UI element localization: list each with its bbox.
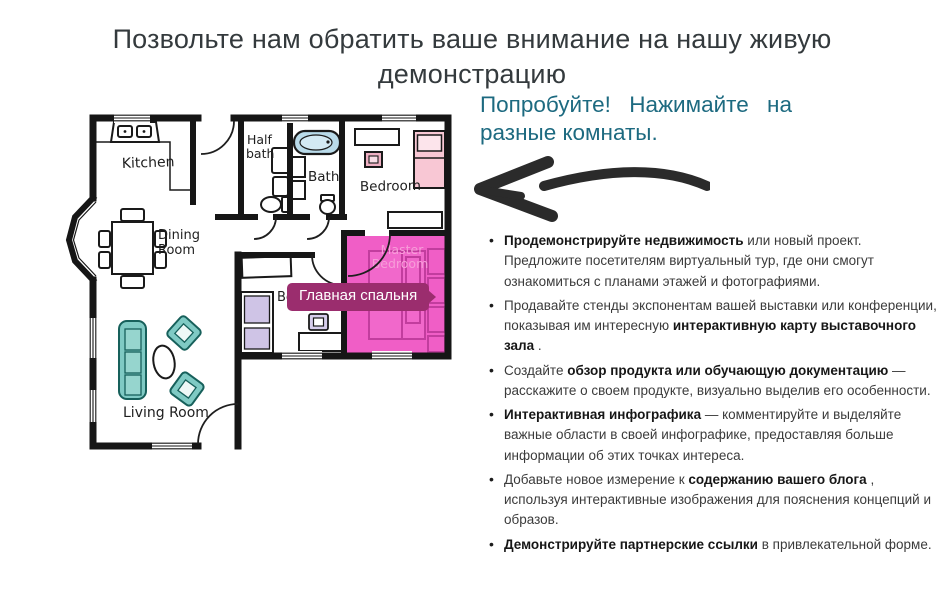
- feature-bullet: Создайте обзор продукта или обучающую до…: [487, 361, 940, 402]
- room-label-bedroom[interactable]: Bedroom: [360, 178, 421, 195]
- coffee-table: [151, 344, 177, 380]
- room-tooltip: Главная спальня: [287, 283, 429, 311]
- room-label-dining-2[interactable]: Room: [158, 243, 195, 258]
- bathtub: [294, 131, 340, 154]
- bath-shelf: [292, 157, 305, 177]
- dresser: [242, 256, 292, 278]
- feature-bullet: Интерактивная инфографика — комментируйт…: [487, 405, 940, 466]
- dining-chair: [121, 209, 144, 221]
- armchair: [166, 315, 203, 352]
- cta-text: Попробуйте! Нажимайте на разные комнаты.: [480, 91, 792, 147]
- half-bath-sink: [272, 148, 289, 173]
- feature-bullet: Добавьте новое измерение к содержанию ва…: [487, 470, 940, 531]
- feature-list: Продемонстрируйте недвижимость или новый…: [487, 231, 940, 559]
- room-label-halfbath-1[interactable]: Half: [247, 132, 273, 147]
- page-title: Позвольте нам обратить ваше внимание на …: [102, 22, 842, 92]
- room-label-living[interactable]: Living Room: [123, 405, 209, 421]
- toilet-bowl: [320, 200, 335, 214]
- dresser: [388, 212, 442, 228]
- room-label-halfbath-2[interactable]: bath: [246, 146, 274, 161]
- armchair: [169, 371, 205, 407]
- dining-chair: [99, 231, 110, 247]
- bath-shelf: [292, 181, 305, 199]
- sofa: [119, 321, 146, 399]
- desk: [299, 333, 344, 351]
- dresser: [355, 129, 399, 145]
- bedroom2-bed: [241, 292, 273, 353]
- room-label-bath[interactable]: Bath: [308, 169, 339, 185]
- room-label-dining-1[interactable]: Dining: [158, 228, 200, 243]
- room-label-kitchen[interactable]: Kitchen: [122, 154, 175, 172]
- feature-bullet: Продемонстрируйте недвижимость или новый…: [487, 231, 940, 292]
- dining-table: [112, 222, 153, 274]
- dining-chair: [99, 252, 110, 268]
- dining-chair: [121, 276, 144, 288]
- feature-bullet: Продавайте стенды экспонентам вашей выст…: [487, 296, 940, 357]
- toilet-bowl: [261, 197, 281, 212]
- room-label-master-2[interactable]: Bedroom: [372, 256, 429, 271]
- feature-bullet: Демонстрируйте партнерские ссылки в прив…: [487, 535, 940, 555]
- desk-chair: [309, 314, 328, 330]
- page: Позвольте нам обратить ваше внимание на …: [0, 0, 944, 600]
- half-bath-cabinet: [273, 177, 288, 196]
- arrow-icon: [460, 152, 710, 237]
- floorplan[interactable]: Master Bedroom: [60, 100, 470, 460]
